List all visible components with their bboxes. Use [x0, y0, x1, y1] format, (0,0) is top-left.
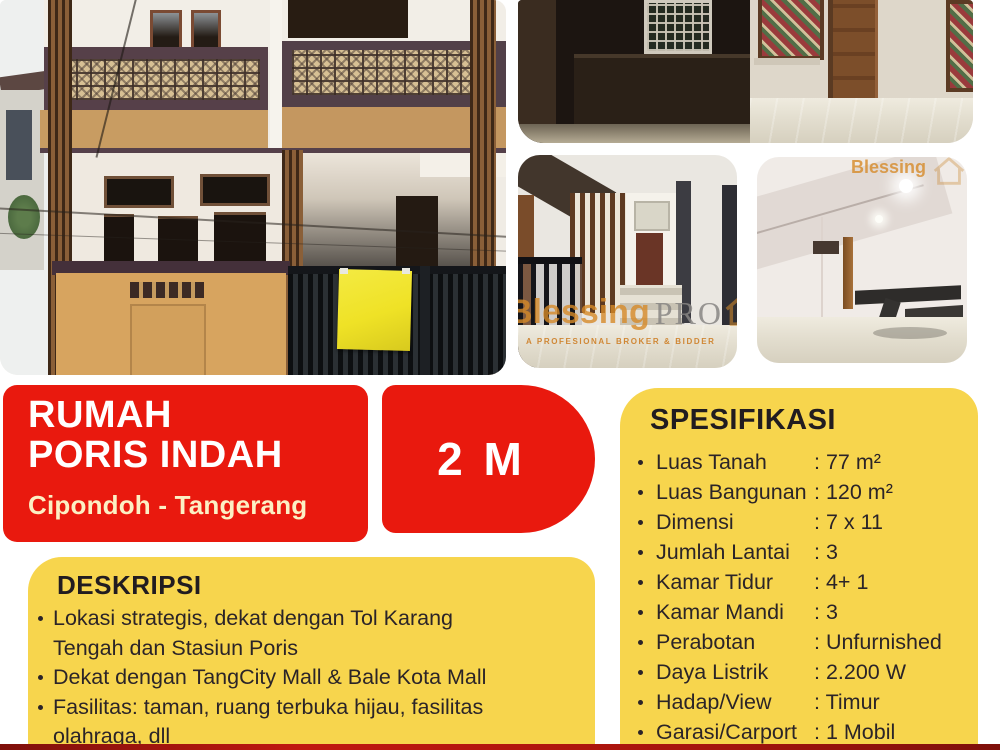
description-card: DESKRIPSI Lokasi strategis, dekat dengan…: [28, 557, 595, 745]
spec-label: Kamar Mandi: [656, 600, 814, 625]
description-item: Lokasi strategis, dekat dengan Tol Karan…: [28, 604, 588, 663]
wood-post: [843, 237, 853, 309]
tile-floor: [757, 317, 967, 363]
transom-window: [104, 176, 174, 208]
banner-tie: [340, 268, 348, 274]
spec-value: 2.200 W: [814, 660, 906, 685]
specification-row: Perabotan Unfurnished: [634, 627, 972, 657]
ceiling-light: [875, 215, 883, 223]
price-pill: 2 M: [382, 385, 595, 533]
description-item-text: Fasilitas: taman, ruang terbuka hijau, f…: [53, 693, 483, 746]
wall-shelf: [813, 241, 839, 254]
spec-value: Unfurnished: [814, 630, 942, 655]
description-item: Dekat dengan TangCity Mall & Bale Kota M…: [28, 663, 588, 693]
specification-row: Luas Bangunan 120 m²: [634, 477, 972, 507]
spec-value: 1 Mobil: [814, 720, 895, 745]
specification-row: Kamar Tidur 4+ 1: [634, 567, 972, 597]
wall-seam: [270, 0, 282, 148]
specification-row: Luas Tanah 77 m²: [634, 447, 972, 477]
bullet-dot: [638, 610, 643, 615]
title-box: RUMAH PORIS INDAH Cipondoh - Tangerang: [3, 385, 368, 542]
price-value: 2 M: [437, 432, 526, 486]
spec-value: 77 m²: [814, 450, 881, 475]
description-item-text: Lokasi strategis, dekat dengan Tol Karan…: [53, 604, 453, 663]
photo-living-room: [518, 0, 973, 143]
specification-row: Jumlah Lantai 3: [634, 537, 972, 567]
floor-shadow: [873, 327, 947, 339]
house-icon: [721, 285, 737, 336]
watermark-tagline: A PROFESIONAL BROKER & BIDDER: [526, 337, 716, 346]
bullet-dot: [638, 580, 643, 585]
watermark-logo: Blessing PRO: [518, 293, 737, 336]
watermark-corner: Blessing: [851, 157, 967, 194]
bullet-dot: [638, 520, 643, 525]
bullet-dot: [638, 550, 643, 555]
inner-window: [634, 201, 670, 231]
spec-label: Garasi/Carport: [656, 720, 814, 745]
pool-table: [574, 54, 750, 130]
tan-door-panel: [130, 304, 206, 375]
grilled-window: [644, 0, 712, 54]
spec-value: 3: [814, 600, 838, 625]
gate-frame-post: [420, 266, 430, 375]
spec-value: 3: [814, 540, 838, 565]
description-item-text: Dekat dengan TangCity Mall & Bale Kota M…: [53, 663, 486, 693]
specification-card: SPESIFIKASI Luas Tanah 77 m² Luas Bangun…: [620, 388, 978, 745]
stained-glass-window: [946, 0, 973, 92]
bullet-dot: [638, 670, 643, 675]
upper-window-strip: [288, 0, 408, 38]
door-frame-dark: [518, 0, 556, 143]
bullet-dot: [638, 700, 643, 705]
spec-label: Kamar Tidur: [656, 570, 814, 595]
spec-value: 120 m²: [814, 480, 893, 505]
house-icon: [930, 157, 967, 194]
transom-window: [200, 174, 270, 206]
photo-kitchen: Blessing: [757, 157, 967, 363]
spec-label: Luas Tanah: [656, 450, 814, 475]
spec-value: Timur: [814, 690, 880, 715]
bottom-red-strip: [0, 744, 1000, 750]
specification-row: Kamar Mandi 3: [634, 597, 972, 627]
concrete-counter-top: [855, 285, 961, 305]
description-list: Lokasi strategis, dekat dengan Tol Karan…: [28, 604, 588, 745]
breeze-block-panel: [62, 59, 260, 100]
spec-label: Daya Listrik: [656, 660, 814, 685]
spec-value: 7 x 11: [814, 510, 883, 535]
specification-row: Daya Listrik 2.200 W: [634, 657, 972, 687]
neighbour-window: [6, 110, 32, 180]
tan-fascia: [40, 110, 268, 150]
carved-ornament-band: [130, 282, 204, 298]
bullet-dot: [638, 640, 643, 645]
banner: [337, 269, 412, 351]
photo-house-exterior: [0, 0, 506, 375]
spec-label: Jumlah Lantai: [656, 540, 814, 565]
bullet-dot: [638, 460, 643, 465]
spec-label: Luas Bangunan: [656, 480, 814, 505]
specification-row: Hadap/View Timur: [634, 687, 972, 717]
dark-floor: [518, 124, 750, 143]
wall-corner-line: [821, 217, 823, 327]
spec-value: 4+ 1: [814, 570, 868, 595]
watermark-brand-text: Blessing: [851, 157, 926, 178]
window-sill: [754, 58, 820, 65]
property-flyer: Blessing PRO A PROFESIONAL BROKER & BIDD…: [0, 0, 1000, 750]
floor-reflection: [750, 98, 973, 143]
bullet-dot: [38, 705, 43, 710]
spec-label: Hadap/View: [656, 690, 814, 715]
title-line-2: PORIS INDAH: [28, 435, 368, 475]
photo-hallway: Blessing PRO A PROFESIONAL BROKER & BIDD…: [518, 155, 737, 368]
watermark-pro-text: PRO: [655, 295, 723, 332]
stained-glass-window: [758, 0, 824, 60]
location-subtitle: Cipondoh - Tangerang: [28, 490, 368, 521]
bullet-dot: [638, 730, 643, 735]
wooden-door: [828, 0, 878, 100]
inner-door: [636, 233, 663, 289]
watermark-brand-text: Blessing: [518, 293, 650, 332]
specification-row: Dimensi 7 x 11: [634, 507, 972, 537]
bullet-dot: [38, 675, 43, 680]
description-heading: DESKRIPSI: [57, 570, 202, 601]
description-item: Fasilitas: taman, ruang terbuka hijau, f…: [28, 693, 588, 746]
bullet-dot: [38, 616, 43, 621]
specification-list: Luas Tanah 77 m² Luas Bangunan 120 m² Di…: [634, 447, 972, 745]
specification-row: Garasi/Carport 1 Mobil: [634, 717, 972, 745]
title-line-1: RUMAH: [28, 395, 368, 435]
specification-heading: SPESIFIKASI: [650, 404, 836, 437]
spec-label: Perabotan: [656, 630, 814, 655]
banner-tie: [402, 268, 410, 274]
breeze-block-panel: [292, 50, 490, 95]
spec-label: Dimensi: [656, 510, 814, 535]
bullet-dot: [638, 490, 643, 495]
